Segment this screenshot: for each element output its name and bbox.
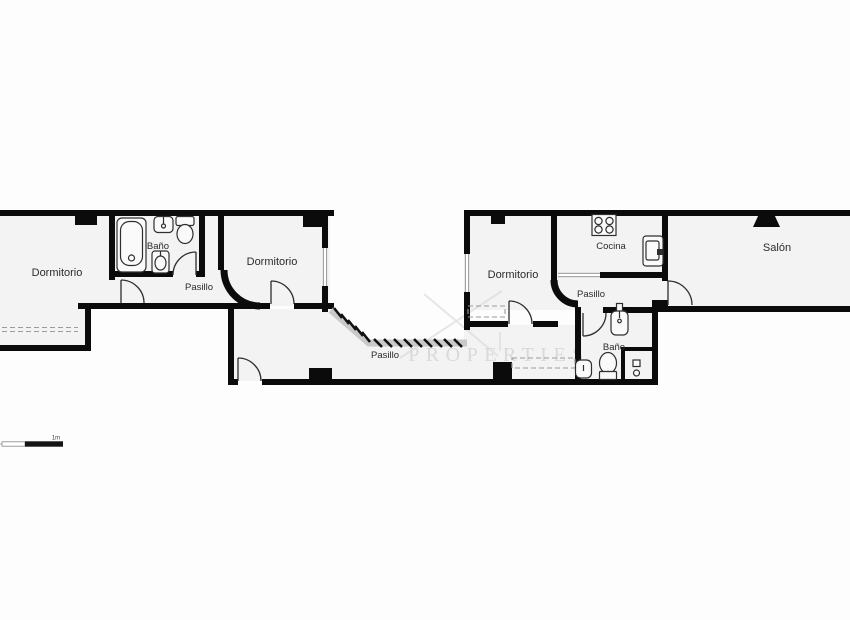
- label-banio-right: Baño: [603, 342, 625, 353]
- label-salon: Salón: [763, 242, 791, 254]
- wall-banio2-right: [652, 307, 658, 385]
- wall-dorm2-right-a: [322, 216, 328, 248]
- kitchen-sink-icon: [643, 236, 663, 266]
- room-salon: [668, 216, 850, 309]
- wall-dorm1-bottom: [0, 345, 91, 351]
- wall-pillar-1: [75, 216, 97, 225]
- label-banio-left: Baño: [147, 241, 169, 252]
- wall-banio1-bottom-b: [196, 271, 205, 277]
- label-dormitorio-left: Dormitorio: [32, 267, 83, 279]
- room-right-block: [467, 216, 668, 310]
- wall-top-left-block: [0, 210, 334, 216]
- wall-dorm3-right: [551, 216, 557, 282]
- label-pasillo-right: Pasillo: [577, 289, 605, 300]
- toilet2-icon: [600, 353, 617, 380]
- wall-corner-filler: [652, 300, 668, 310]
- label-dormitorio-middle: Dormitorio: [247, 256, 298, 268]
- wall-dorm2-left: [218, 216, 224, 270]
- wall-top-right-block: [464, 210, 850, 216]
- label-pasillo-left: Pasillo: [185, 282, 213, 293]
- scale-bar: 1m: [0, 436, 63, 447]
- bathtub-icon: [117, 218, 146, 272]
- wall-corridor-bottom-a: [228, 379, 238, 385]
- wall-banio2-top: [603, 307, 655, 313]
- floorplan-canvas: PROPERTIES: [0, 0, 850, 620]
- wall-pillar-4: [493, 362, 512, 385]
- wall-banio2-bottom: [575, 379, 658, 385]
- wall-shower-top: [621, 347, 652, 351]
- bidet2-icon: [576, 360, 592, 378]
- wall-pillar-2: [303, 216, 324, 227]
- wall-dorm3-bottom-b: [533, 321, 558, 327]
- sink-icon: [154, 217, 173, 233]
- wall-dorm1-right: [109, 216, 115, 280]
- floorplan-page: PROPERTIES: [0, 0, 850, 620]
- wall-dorm2-right-b: [322, 286, 328, 312]
- label-dormitorio-right: Dormitorio: [488, 269, 539, 281]
- wall-salon-bottom: [656, 306, 850, 312]
- wall-dorm3-bottom-a: [464, 321, 508, 327]
- wall-pillar-5: [491, 216, 505, 224]
- scale-bar-label: 1m: [52, 436, 60, 442]
- label-cocina: Cocina: [596, 241, 626, 252]
- wall-cocina-bottom: [600, 272, 668, 278]
- toilet-icon: [176, 217, 194, 244]
- label-pasillo-main: Pasillo: [371, 350, 399, 361]
- stove-icon: [592, 215, 616, 236]
- wall-corridor-left: [228, 309, 234, 385]
- wall-pillar-3: [309, 368, 332, 385]
- wall-dorm3-left-a: [464, 216, 470, 254]
- wall-banio1-right: [199, 216, 205, 277]
- bidet-icon: [152, 251, 169, 273]
- wall-dorm1-leg-right: [85, 309, 91, 351]
